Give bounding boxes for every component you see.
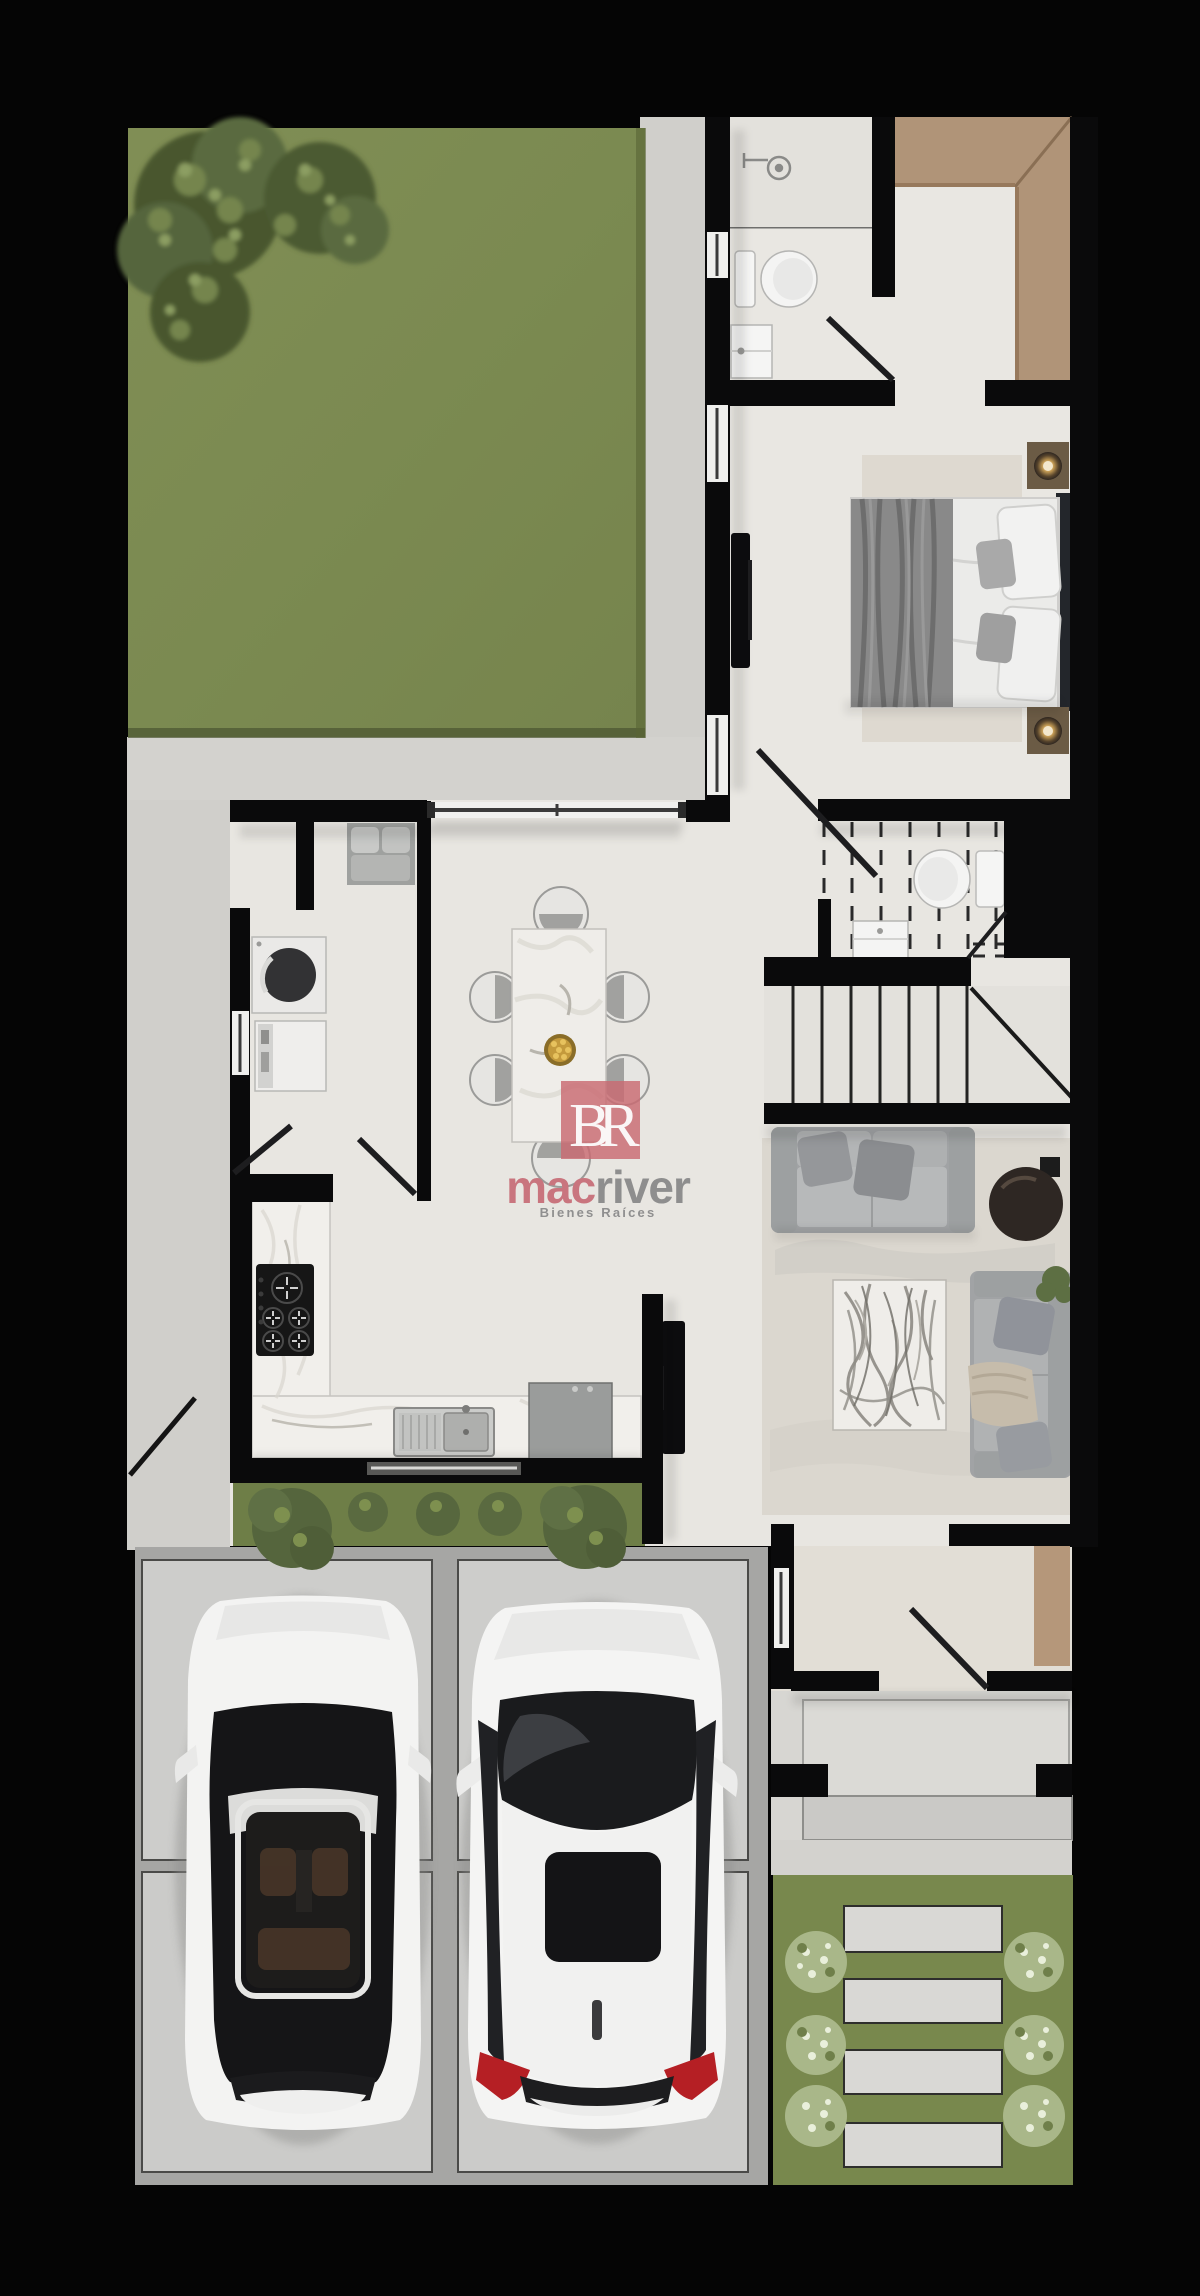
svg-text:Bienes Raíces: Bienes Raíces <box>540 1205 657 1220</box>
